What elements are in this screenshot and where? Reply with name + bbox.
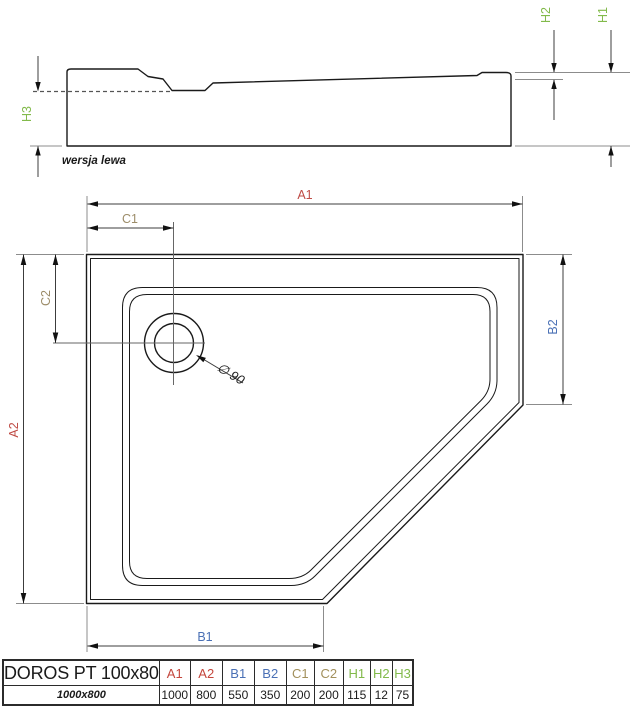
dim-label-c1: C1 [122, 212, 138, 226]
h2-arrow-bottom [551, 80, 556, 90]
col-header-b2: B2 [254, 660, 286, 686]
value-a2: 800 [190, 686, 222, 706]
c1-arrow-left [88, 225, 99, 231]
dim-label-h2: H2 [539, 7, 553, 23]
size-label: 1000x800 [3, 686, 159, 706]
b1-arrow-left [88, 643, 99, 649]
value-a1: 1000 [159, 686, 190, 706]
drawing-canvas: H3 H2 H1 wersja lewa [0, 0, 632, 659]
h3-arrow-bottom [35, 146, 40, 156]
dim-label-a2: A2 [7, 422, 21, 437]
product-name: DOROS PT 100x80 [3, 660, 159, 686]
spec-table: DOROS PT 100x80 A1 A2 B1 B2 C1 C2 H1 H2 … [2, 659, 414, 706]
technical-drawing-page: H3 H2 H1 wersja lewa [0, 0, 632, 715]
value-b1: 550 [222, 686, 254, 706]
c2-arrow-top [53, 255, 59, 266]
a1-arrow-right [512, 201, 523, 207]
b1-arrow-right [313, 643, 324, 649]
dim-label-b2: B2 [546, 319, 560, 334]
b2-arrow-bottom [560, 394, 566, 405]
h3-arrow-top [35, 82, 40, 92]
tray-outer-edge [87, 255, 524, 604]
col-header-h3: H3 [392, 660, 413, 686]
col-header-c1: C1 [286, 660, 314, 686]
side-view: H3 H2 H1 wersja lewa [20, 7, 630, 177]
a2-arrow-bottom [21, 593, 27, 604]
side-view-tray-profile [67, 69, 511, 146]
a2-arrow-top [21, 255, 27, 266]
value-c1: 200 [286, 686, 314, 706]
dim-label-h3: H3 [20, 106, 34, 122]
h1-arrow-bottom [608, 146, 613, 156]
dim-label-b1: B1 [197, 630, 212, 644]
c2-arrow-bottom [53, 333, 59, 344]
dim-label-h1: H1 [596, 7, 610, 23]
top-view: ∅ 90 A1 C1 A2 C2 B2 [7, 188, 572, 652]
value-b2: 350 [254, 686, 286, 706]
spec-header-row: DOROS PT 100x80 A1 A2 B1 B2 C1 C2 H1 H2 … [3, 660, 413, 686]
value-h2: 12 [370, 686, 392, 706]
col-header-c2: C2 [314, 660, 343, 686]
h2-arrow-top [551, 63, 556, 73]
col-header-a1: A1 [159, 660, 190, 686]
col-header-h2: H2 [370, 660, 392, 686]
value-c2: 200 [314, 686, 343, 706]
side-view-caption: wersja lewa [62, 155, 127, 167]
col-header-a2: A2 [190, 660, 222, 686]
b2-arrow-top [560, 255, 566, 266]
spec-value-row: 1000x800 1000 800 550 350 200 200 115 12… [3, 686, 413, 706]
dim-label-a1: A1 [297, 188, 312, 202]
a1-arrow-left [88, 201, 99, 207]
c1-arrow-right [163, 225, 174, 231]
value-h1: 115 [343, 686, 370, 706]
dim-label-c2: C2 [39, 290, 53, 306]
h1-arrow-top [608, 63, 613, 73]
value-h3: 75 [392, 686, 413, 706]
col-header-h1: H1 [343, 660, 370, 686]
col-header-b1: B1 [222, 660, 254, 686]
